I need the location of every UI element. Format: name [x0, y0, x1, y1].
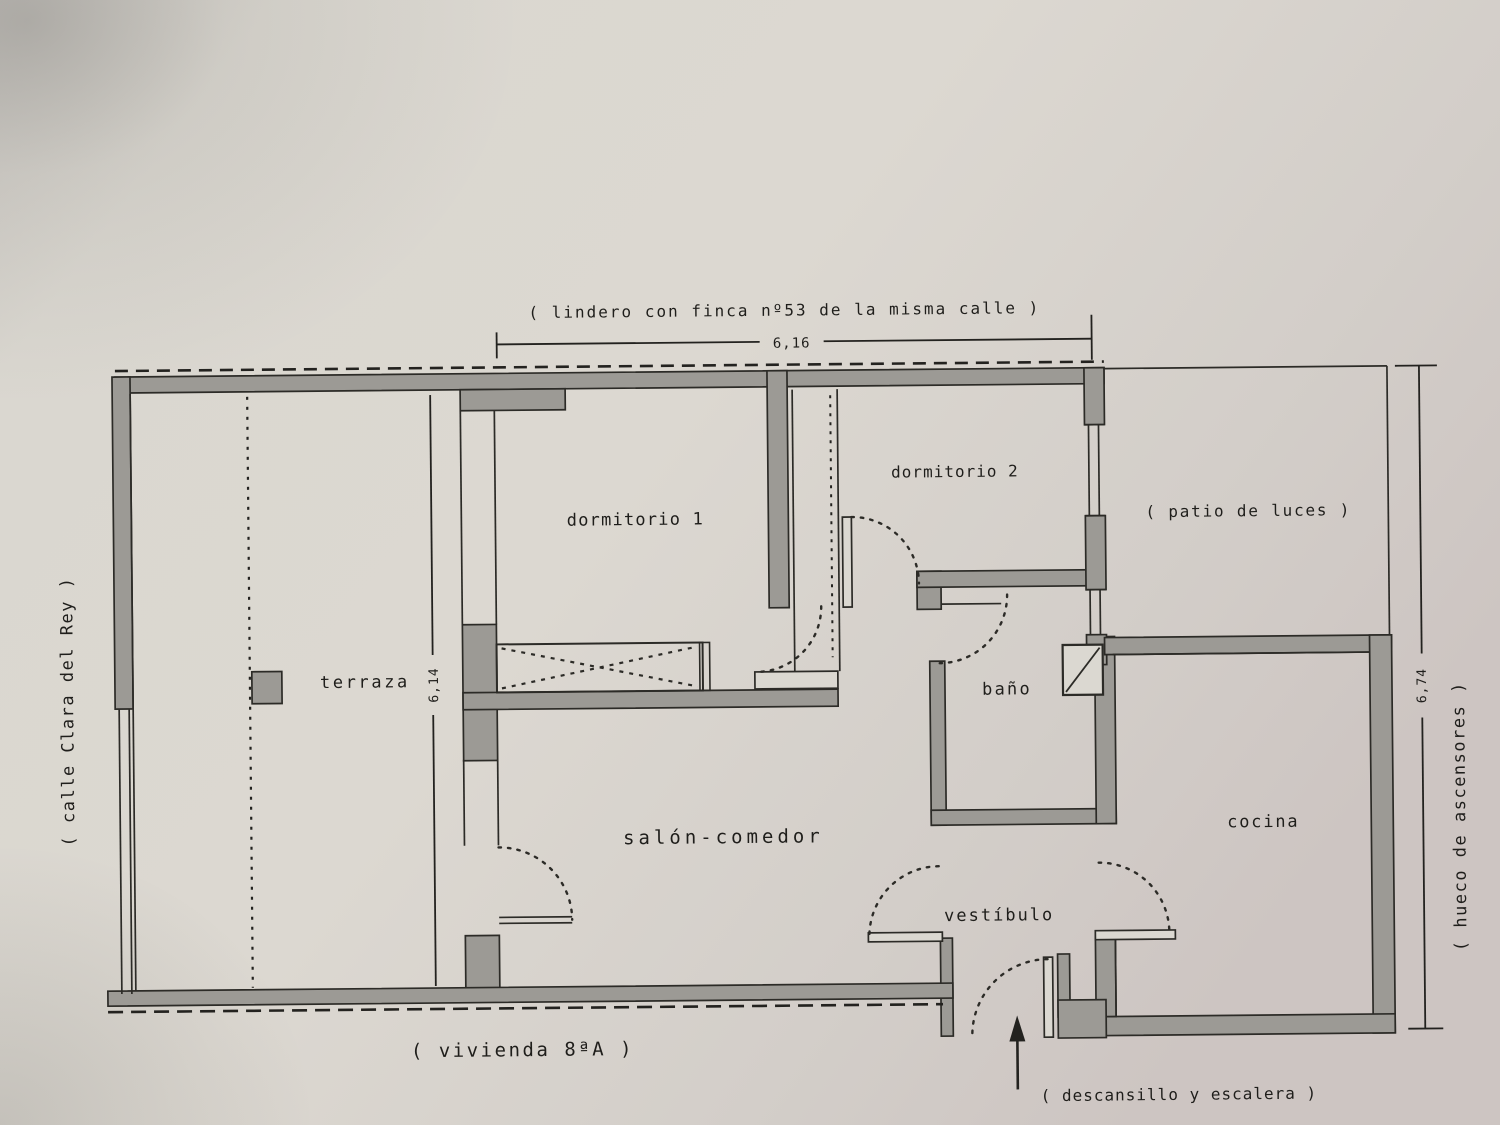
paper-shadow-bottom-left	[0, 500, 700, 1125]
dimension-right-height: 6,74	[1415, 668, 1430, 703]
room-label-terraza: terraza	[320, 672, 410, 693]
dimension-terraza-depth: 6,14	[427, 667, 442, 702]
room-label-bano: baño	[982, 679, 1032, 699]
room-label-salon: salón-comedor	[623, 825, 824, 849]
floor-plan-drawing: ( lindero con finca nº53 de la misma cal…	[0, 0, 1500, 1125]
dimension-top-width: 6,16	[773, 335, 811, 351]
label-landing: ( descansillo y escalera )	[1041, 1084, 1318, 1106]
room-label-dormitorio1: dormitorio 1	[567, 509, 704, 530]
room-label-vestibulo: vestíbulo	[944, 905, 1054, 926]
label-dwelling: ( vivienda 8ªA )	[411, 1038, 634, 1062]
floor-plan-sheet: ( lindero con finca nº53 de la misma cal…	[0, 0, 1500, 1125]
label-patio: ( patio de luces )	[1145, 500, 1351, 521]
label-elevator-shaft: ( hueco de ascensores )	[1449, 681, 1472, 951]
label-street-left: ( calle Clara del Rey )	[57, 577, 80, 847]
room-label-cocina: cocina	[1227, 812, 1299, 833]
room-label-dormitorio2: dormitorio 2	[891, 461, 1019, 481]
